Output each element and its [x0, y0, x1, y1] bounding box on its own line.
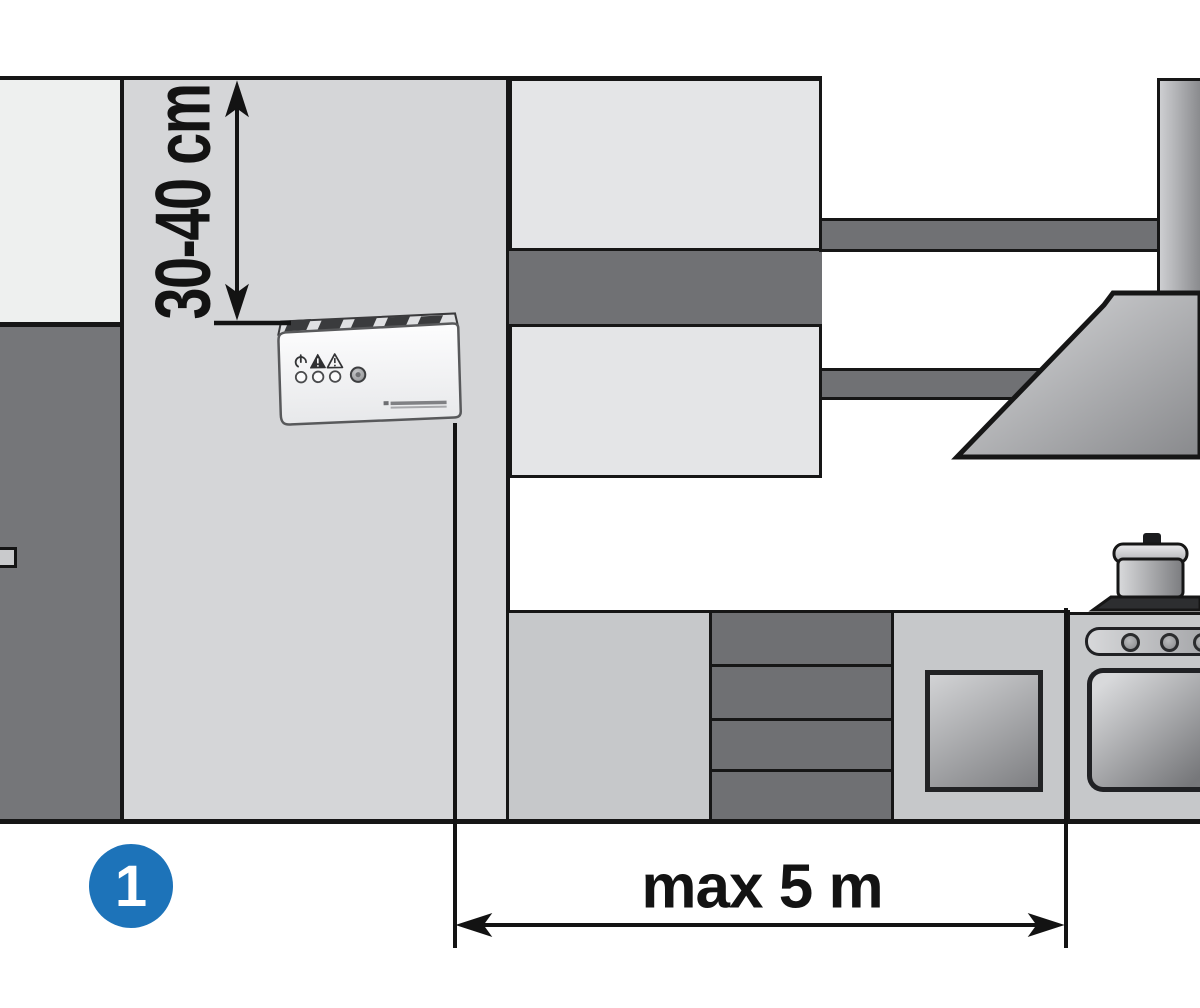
arrowhead-right	[1029, 914, 1063, 936]
left-wall-panel	[0, 80, 120, 323]
stove-control-panel	[1085, 627, 1200, 656]
step-number-badge: 1	[89, 844, 173, 928]
horizontal-dimension-label: max 5 m	[641, 852, 882, 923]
range-hood-canopy	[957, 293, 1200, 457]
stovetop-and-pot	[1085, 528, 1200, 613]
oven-door	[1087, 668, 1200, 792]
cabinet-door-window	[925, 670, 1043, 792]
drawer-divider	[712, 718, 891, 721]
base-cabinet	[506, 610, 712, 822]
arrowhead-left	[457, 914, 491, 936]
left-door	[0, 327, 120, 821]
drawer-divider	[712, 769, 891, 772]
stove-knob	[1160, 633, 1179, 652]
door-handle	[0, 547, 17, 568]
test-button[interactable]	[351, 367, 366, 382]
drawer-unit	[709, 610, 894, 822]
gas-alarm-device	[269, 308, 466, 431]
pot-body	[1118, 559, 1183, 597]
hood-duct	[1157, 78, 1200, 294]
wall-edge-left-line	[120, 78, 124, 822]
installation-diagram: 30-40 cm max 5 m 1	[0, 0, 1200, 1008]
status-leds	[296, 371, 341, 382]
range-hood	[950, 289, 1200, 461]
stove-knob	[1121, 633, 1140, 652]
door-top-line	[0, 322, 124, 327]
vertical-dimension-label: 30-40 cm	[138, 84, 229, 319]
wall-shelf-upper	[819, 218, 1160, 252]
stovetop-slab	[1093, 597, 1200, 610]
stove-knob	[1193, 633, 1200, 652]
floor-line	[0, 819, 1200, 824]
drawer-divider	[712, 664, 891, 667]
upper-cabinet-dark-band	[509, 248, 822, 327]
